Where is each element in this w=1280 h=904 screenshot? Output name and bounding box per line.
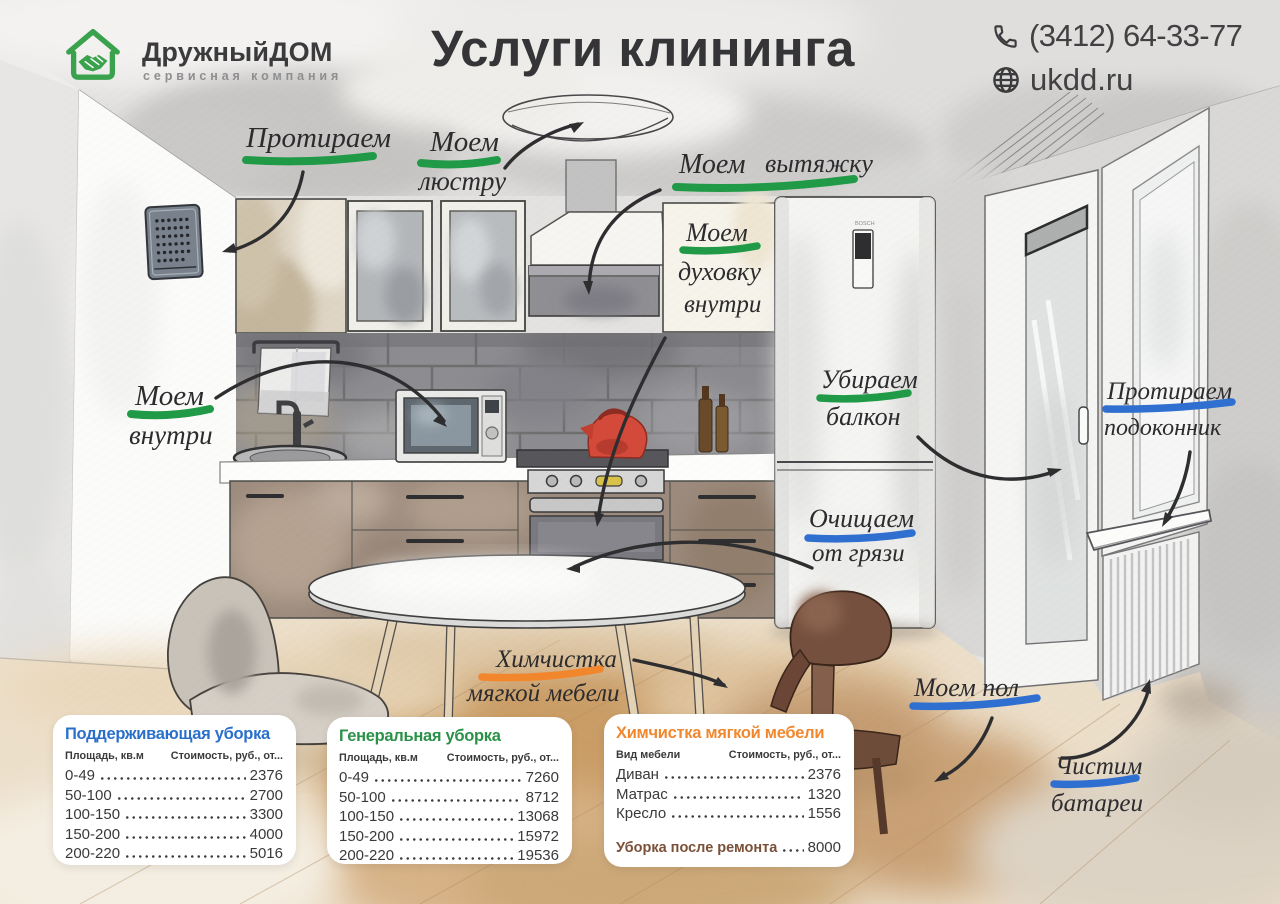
svg-text:подоконник: подоконник [1104,415,1222,441]
svg-text:мягкой мебели: мягкой мебели [466,680,620,707]
svg-text:Протираем: Протираем [245,122,391,154]
svg-text:внутри: внутри [129,420,213,450]
svg-text:Очищаем: Очищаем [809,504,914,533]
svg-text:Моем пол: Моем пол [913,673,1019,702]
svg-text:Моем: Моем [685,218,748,247]
svg-text:духовку: духовку [678,257,761,286]
svg-text:Моем: Моем [678,149,746,180]
svg-text:Убираем: Убираем [821,365,918,394]
svg-text:люстру: люстру [417,166,506,196]
svg-text:батареи: батареи [1051,790,1143,817]
svg-text:от грязи: от грязи [812,540,905,567]
svg-text:вытяжку: вытяжку [765,149,873,178]
svg-text:балкон: балкон [826,402,900,431]
svg-text:внутри: внутри [684,291,761,318]
svg-text:Моем: Моем [429,126,499,158]
svg-text:Моем: Моем [134,380,204,412]
